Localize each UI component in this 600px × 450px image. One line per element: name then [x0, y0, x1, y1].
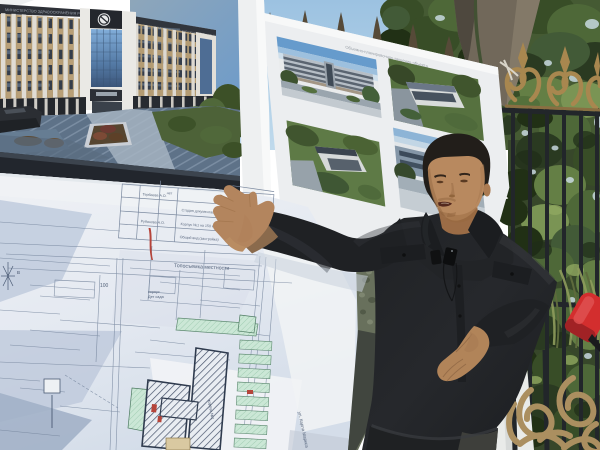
svg-text:В: В: [17, 270, 20, 275]
svg-text:Дет сада: Дет сада: [148, 295, 165, 299]
svg-text:нет: нет: [167, 191, 173, 195]
svg-text:корпус: корпус: [148, 290, 160, 294]
svg-text:100: 100: [100, 283, 109, 289]
